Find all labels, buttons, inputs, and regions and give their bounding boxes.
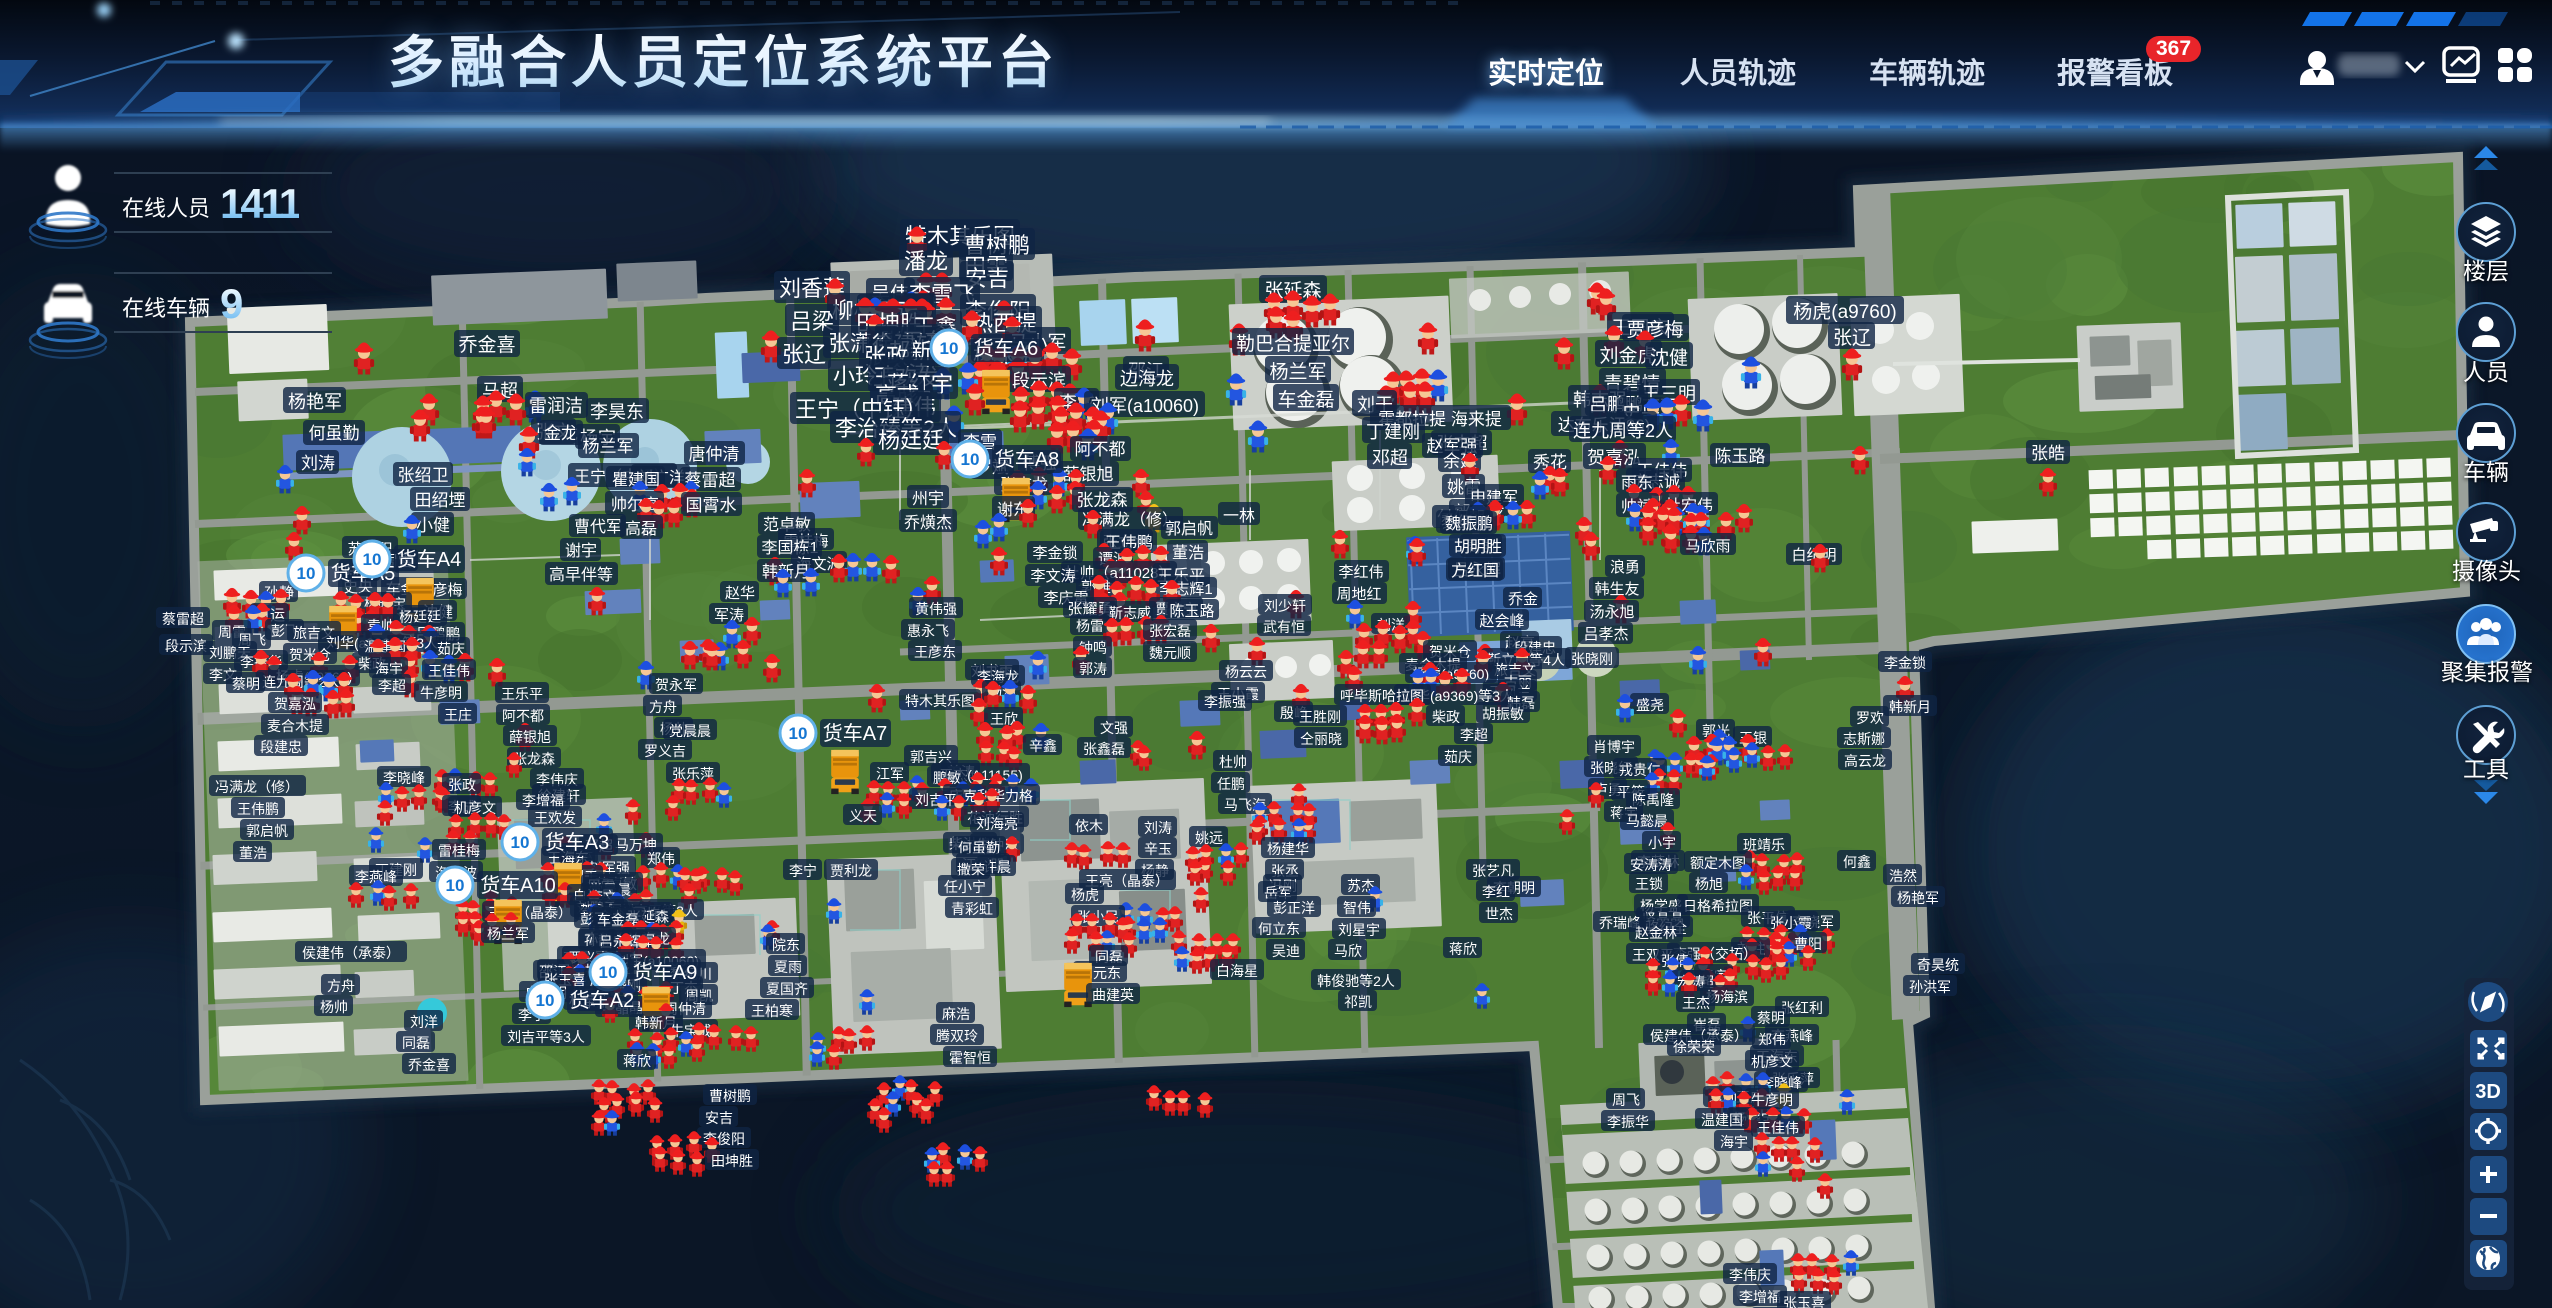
- svg-text:特木其乐图: 特木其乐图: [905, 693, 975, 709]
- svg-text:黄伟强: 黄伟强: [915, 601, 957, 617]
- svg-text:乔熿杰: 乔熿杰: [904, 514, 952, 532]
- svg-text:张玉喜: 张玉喜: [1783, 1295, 1825, 1308]
- svg-text:蒋欣: 蒋欣: [623, 1053, 651, 1069]
- svg-text:小宇: 小宇: [1648, 835, 1676, 851]
- svg-text:世杰: 世杰: [1485, 906, 1513, 922]
- svg-text:王锁: 王锁: [1635, 876, 1663, 892]
- svg-text:文强: 文强: [1100, 720, 1128, 736]
- svg-text:刘洋: 刘洋: [410, 1014, 438, 1030]
- svg-text:赵会峰: 赵会峰: [1479, 613, 1524, 630]
- svg-text:贺嘉泓: 贺嘉泓: [274, 696, 316, 712]
- svg-text:王杰: 王杰: [1682, 995, 1710, 1011]
- svg-text:董浩: 董浩: [239, 845, 267, 861]
- svg-text:魏振鹏: 魏振鹏: [1445, 515, 1493, 533]
- svg-text:勒巴合提亚尔: 勒巴合提亚尔: [1236, 333, 1350, 355]
- svg-text:杜帅: 杜帅: [1219, 754, 1247, 770]
- svg-text:贺永军: 贺永军: [655, 677, 697, 693]
- svg-text:小健: 小健: [416, 516, 450, 535]
- svg-text:张辽: 张辽: [782, 342, 826, 367]
- svg-text:武有恒: 武有恒: [1263, 619, 1305, 635]
- svg-text:孙洪军: 孙洪军: [1909, 979, 1951, 995]
- svg-text:货车A6: 货车A6: [974, 337, 1038, 360]
- svg-text:李超: 李超: [1460, 727, 1488, 743]
- svg-text:杨艳军: 杨艳军: [1897, 890, 1939, 906]
- svg-text:杨兰军: 杨兰军: [487, 926, 529, 942]
- svg-text:王庄: 王庄: [444, 707, 472, 723]
- svg-text:柴政: 柴政: [1432, 709, 1460, 725]
- svg-text:阿不都: 阿不都: [1075, 440, 1126, 459]
- svg-text:辛鑫: 辛鑫: [1029, 738, 1057, 754]
- svg-text:祁凯: 祁凯: [1344, 994, 1372, 1010]
- svg-text:10: 10: [363, 550, 382, 569]
- svg-text:郭涛: 郭涛: [1079, 661, 1107, 677]
- svg-text:李伟庆: 李伟庆: [1729, 1267, 1771, 1283]
- svg-text:李红伟: 李红伟: [1338, 564, 1383, 581]
- svg-text:冯满龙（修）: 冯满龙（修）: [215, 779, 299, 795]
- svg-text:杨兰军: 杨兰军: [583, 437, 634, 456]
- svg-text:货车A4: 货车A4: [397, 548, 461, 571]
- svg-text:杨雷: 杨雷: [1076, 618, 1104, 634]
- svg-text:李宁: 李宁: [789, 863, 817, 879]
- svg-text:韩新月: 韩新月: [1889, 699, 1931, 715]
- svg-text:刘吉平等3人: 刘吉平等3人: [507, 1029, 585, 1045]
- svg-text:何虽勤: 何虽勤: [309, 424, 360, 443]
- svg-text:蔡明: 蔡明: [1757, 1010, 1785, 1026]
- svg-text:李红: 李红: [1482, 884, 1510, 900]
- svg-text:仝丽晓: 仝丽晓: [1300, 731, 1342, 747]
- svg-text:牛彦明: 牛彦明: [420, 685, 462, 701]
- svg-text:浪勇: 浪勇: [1610, 559, 1640, 576]
- svg-text:杨廷廷: 杨廷廷: [878, 428, 944, 453]
- svg-text:杨兰军: 杨兰军: [1269, 361, 1326, 383]
- svg-text:李金锁: 李金锁: [1032, 545, 1077, 562]
- svg-text:张绍卫: 张绍卫: [398, 466, 449, 485]
- svg-text:段建忠: 段建忠: [260, 739, 302, 755]
- svg-text:货车A10: 货车A10: [480, 874, 556, 897]
- svg-text:贾彦梅: 贾彦梅: [1626, 319, 1683, 341]
- svg-text:货车A7: 货车A7: [823, 722, 887, 745]
- svg-text:货车A8: 货车A8: [995, 448, 1059, 471]
- svg-text:惠永飞: 惠永飞: [907, 623, 949, 639]
- svg-text:10: 10: [789, 724, 808, 743]
- svg-text:何立东: 何立东: [1258, 921, 1300, 937]
- svg-text:邓超: 邓超: [1372, 448, 1408, 468]
- svg-text:李增福: 李增福: [1739, 1289, 1781, 1305]
- svg-text:高磊: 高磊: [625, 520, 657, 538]
- svg-text:高云龙: 高云龙: [1844, 753, 1886, 769]
- svg-text:蔡明: 蔡明: [232, 676, 260, 692]
- svg-text:罗义吉: 罗义吉: [644, 743, 686, 759]
- svg-text:刘少轩: 刘少轩: [1264, 598, 1306, 614]
- svg-text:杨艳军: 杨艳军: [288, 392, 342, 412]
- svg-text:马懿晨: 马懿晨: [1626, 813, 1668, 829]
- svg-text:盛尧: 盛尧: [1636, 697, 1664, 713]
- svg-text:腾双玲: 腾双玲: [936, 1028, 978, 1044]
- svg-text:牛彦明: 牛彦明: [1751, 1092, 1793, 1108]
- svg-text:张晓刚: 张晓刚: [1571, 651, 1613, 667]
- svg-text:杨虎(a9760): 杨虎(a9760): [1793, 301, 1897, 323]
- svg-text:夏雨: 夏雨: [774, 959, 802, 975]
- svg-text:丁建刚: 丁建刚: [1366, 422, 1420, 442]
- svg-text:王乐平: 王乐平: [501, 686, 543, 702]
- svg-text:国霄水: 国霄水: [686, 496, 737, 515]
- svg-text:潘龙: 潘龙: [904, 249, 948, 274]
- svg-text:同磊: 同磊: [402, 1035, 430, 1051]
- svg-text:青彩虹: 青彩虹: [951, 901, 993, 917]
- svg-text:智伟: 智伟: [1343, 900, 1371, 916]
- svg-text:车金磊: 车金磊: [1277, 389, 1334, 411]
- svg-text:马欣: 马欣: [1334, 943, 1362, 959]
- svg-text:杨帅: 杨帅: [320, 999, 348, 1015]
- svg-text:10: 10: [446, 876, 465, 895]
- svg-text:陈玉路: 陈玉路: [1169, 602, 1214, 620]
- svg-text:马欣雨: 马欣雨: [1685, 538, 1730, 555]
- svg-text:乔金: 乔金: [1508, 591, 1538, 608]
- svg-text:王佳伟: 王佳伟: [428, 663, 470, 679]
- svg-text:赵金林: 赵金林: [1635, 925, 1677, 941]
- svg-text:王胜刚: 王胜刚: [1299, 709, 1341, 725]
- svg-text:谢宇: 谢宇: [565, 542, 597, 560]
- svg-text:刘涛: 刘涛: [301, 454, 335, 473]
- svg-text:郭启帆: 郭启帆: [1165, 520, 1213, 538]
- svg-text:边海龙: 边海龙: [1120, 369, 1174, 389]
- svg-text:一林: 一林: [1223, 507, 1255, 525]
- svg-text:阿不都: 阿不都: [502, 708, 544, 724]
- svg-text:李超: 李超: [378, 678, 406, 694]
- svg-text:魏元顺: 魏元顺: [1149, 645, 1191, 661]
- svg-text:李金锁: 李金锁: [1884, 655, 1926, 671]
- svg-text:江军: 江军: [876, 766, 904, 782]
- svg-text:姚远: 姚远: [1195, 830, 1223, 846]
- svg-text:韩生友: 韩生友: [1594, 581, 1639, 598]
- svg-text:霍智恒: 霍智恒: [949, 1050, 991, 1066]
- svg-text:曹代军: 曹代军: [574, 518, 622, 536]
- svg-text:党晨晨: 党晨晨: [669, 723, 711, 739]
- svg-text:方红国: 方红国: [1451, 562, 1499, 580]
- svg-text:安吉: 安吉: [705, 1110, 733, 1126]
- svg-text:货车A9: 货车A9: [633, 961, 697, 984]
- svg-text:李晓峰: 李晓峰: [383, 770, 425, 786]
- svg-text:曹树鹏: 曹树鹏: [709, 1088, 751, 1104]
- svg-text:田坤胜: 田坤胜: [711, 1153, 753, 1169]
- svg-text:杨虎: 杨虎: [1071, 887, 1099, 903]
- svg-text:刘涛: 刘涛: [1144, 820, 1172, 836]
- svg-text:吴迪: 吴迪: [1272, 943, 1300, 959]
- svg-text:王伟鹏: 王伟鹏: [237, 801, 279, 817]
- svg-text:吕孝杰: 吕孝杰: [1583, 626, 1628, 643]
- svg-text:金龙: 金龙: [544, 424, 578, 443]
- svg-text:胡明胜: 胡明胜: [1454, 538, 1502, 556]
- svg-text:温建国: 温建国: [1701, 1112, 1743, 1128]
- svg-text:曲建英: 曲建英: [1092, 987, 1134, 1003]
- svg-text:奇昊统: 奇昊统: [1917, 957, 1959, 973]
- svg-text:方舟: 方舟: [649, 699, 677, 715]
- svg-text:侯建伟（承泰）: 侯建伟（承泰）: [302, 945, 400, 961]
- svg-text:蔡雷超: 蔡雷超: [162, 611, 204, 627]
- svg-text:高早伴等: 高早伴等: [549, 566, 613, 584]
- svg-text:10: 10: [511, 833, 530, 852]
- svg-text:罗欢: 罗欢: [1856, 710, 1884, 726]
- svg-text:李振华: 李振华: [1607, 1114, 1649, 1130]
- svg-text:白海星: 白海星: [1216, 963, 1258, 979]
- svg-text:10: 10: [961, 450, 980, 469]
- svg-text:依木: 依木: [1075, 818, 1103, 834]
- svg-text:周飞: 周飞: [1612, 1092, 1640, 1108]
- svg-text:周地红: 周地红: [1336, 586, 1381, 603]
- svg-text:胡振敏: 胡振敏: [1482, 706, 1524, 722]
- svg-text:王欢发: 王欢发: [534, 810, 576, 826]
- svg-text:雷桂梅: 雷桂梅: [438, 843, 480, 859]
- svg-text:彭正洋: 彭正洋: [1273, 900, 1315, 916]
- svg-text:李文涛: 李文涛: [1030, 568, 1075, 585]
- svg-text:连九周等2人: 连九周等2人: [1573, 421, 1673, 441]
- svg-text:田绍堙: 田绍堙: [415, 491, 466, 510]
- svg-text:浩然: 浩然: [1889, 868, 1917, 884]
- svg-text:额定木图: 额定木图: [1690, 855, 1746, 871]
- svg-text:赵华: 赵华: [725, 585, 755, 602]
- svg-text:麻浩: 麻浩: [942, 1006, 970, 1022]
- svg-text:乔金喜: 乔金喜: [458, 334, 515, 356]
- svg-text:州宇: 州宇: [912, 490, 944, 508]
- svg-text:雷润洁: 雷润洁: [529, 396, 583, 416]
- svg-text:乔金喜: 乔金喜: [408, 1057, 450, 1073]
- svg-text:货车A2: 货车A2: [570, 989, 634, 1012]
- svg-text:何鑫: 何鑫: [1843, 854, 1871, 870]
- svg-text:10: 10: [536, 991, 555, 1010]
- svg-text:郭启帆: 郭启帆: [246, 823, 288, 839]
- svg-text:刘海亮: 刘海亮: [976, 816, 1018, 832]
- svg-text:张宏磊: 张宏磊: [1149, 623, 1191, 639]
- svg-text:杨建华: 杨建华: [1267, 841, 1309, 857]
- svg-text:蒋欣: 蒋欣: [1449, 941, 1477, 957]
- svg-text:茹庆: 茹庆: [1444, 749, 1472, 765]
- svg-text:张政: 张政: [448, 777, 476, 793]
- svg-text:茹庆: 茹庆: [437, 641, 465, 657]
- svg-text:张皓: 张皓: [2031, 444, 2065, 463]
- svg-text:志斯娜: 志斯娜: [1843, 731, 1885, 747]
- svg-text:安涛涛: 安涛涛: [1630, 857, 1672, 873]
- svg-text:王柏寒: 王柏寒: [751, 1003, 793, 1019]
- svg-text:呼毕斯哈拉图: 呼毕斯哈拉图: [1340, 688, 1424, 704]
- svg-text:唐仲清: 唐仲清: [689, 444, 740, 464]
- svg-text:10: 10: [599, 963, 618, 982]
- svg-text:汤永旭: 汤永旭: [1589, 604, 1634, 621]
- svg-text:辛玉: 辛玉: [1144, 841, 1172, 857]
- svg-text:10: 10: [297, 564, 316, 583]
- svg-text:李振强: 李振强: [1204, 694, 1246, 710]
- svg-text:沈健: 沈健: [1650, 347, 1688, 369]
- svg-text:段示滨: 段示滨: [165, 638, 207, 654]
- svg-text:张鑫磊: 张鑫磊: [1083, 741, 1125, 757]
- svg-text:刘星宇: 刘星宇: [1338, 922, 1380, 938]
- svg-text:任鹏: 任鹏: [1217, 776, 1245, 792]
- svg-text:海宇: 海宇: [1720, 1134, 1748, 1150]
- svg-text:义天: 义天: [849, 808, 877, 824]
- svg-text:院东: 院东: [772, 937, 800, 953]
- svg-text:张辽: 张辽: [1833, 327, 1871, 349]
- svg-text:徐荣荣: 徐荣荣: [1673, 1039, 1715, 1055]
- svg-text:贺米仓: 贺米仓: [289, 647, 331, 663]
- svg-text:任小宁: 任小宁: [944, 879, 986, 895]
- svg-text:杨云云: 杨云云: [1225, 664, 1267, 680]
- svg-text:货车A3: 货车A3: [545, 831, 609, 854]
- svg-text:方舟: 方舟: [327, 978, 355, 994]
- svg-text:10: 10: [940, 339, 959, 358]
- svg-text:董浩: 董浩: [1172, 544, 1204, 562]
- svg-text:韩俊驰等2人: 韩俊驰等2人: [1317, 973, 1395, 989]
- svg-text:李昊东: 李昊东: [590, 402, 644, 422]
- svg-text:夏国齐: 夏国齐: [766, 981, 808, 997]
- svg-text:杨旭: 杨旭: [1695, 876, 1723, 892]
- svg-text:3D: 3D: [2475, 1081, 2501, 1103]
- svg-text:麦合木提: 麦合木提: [267, 718, 323, 734]
- svg-text:薛银旭: 薛银旭: [509, 729, 551, 745]
- svg-text:贾利龙: 贾利龙: [830, 863, 872, 879]
- svg-text:王彦东: 王彦东: [914, 644, 956, 660]
- svg-text:陈玉路: 陈玉路: [1715, 447, 1766, 466]
- svg-text:肖博宇: 肖博宇: [1593, 739, 1635, 755]
